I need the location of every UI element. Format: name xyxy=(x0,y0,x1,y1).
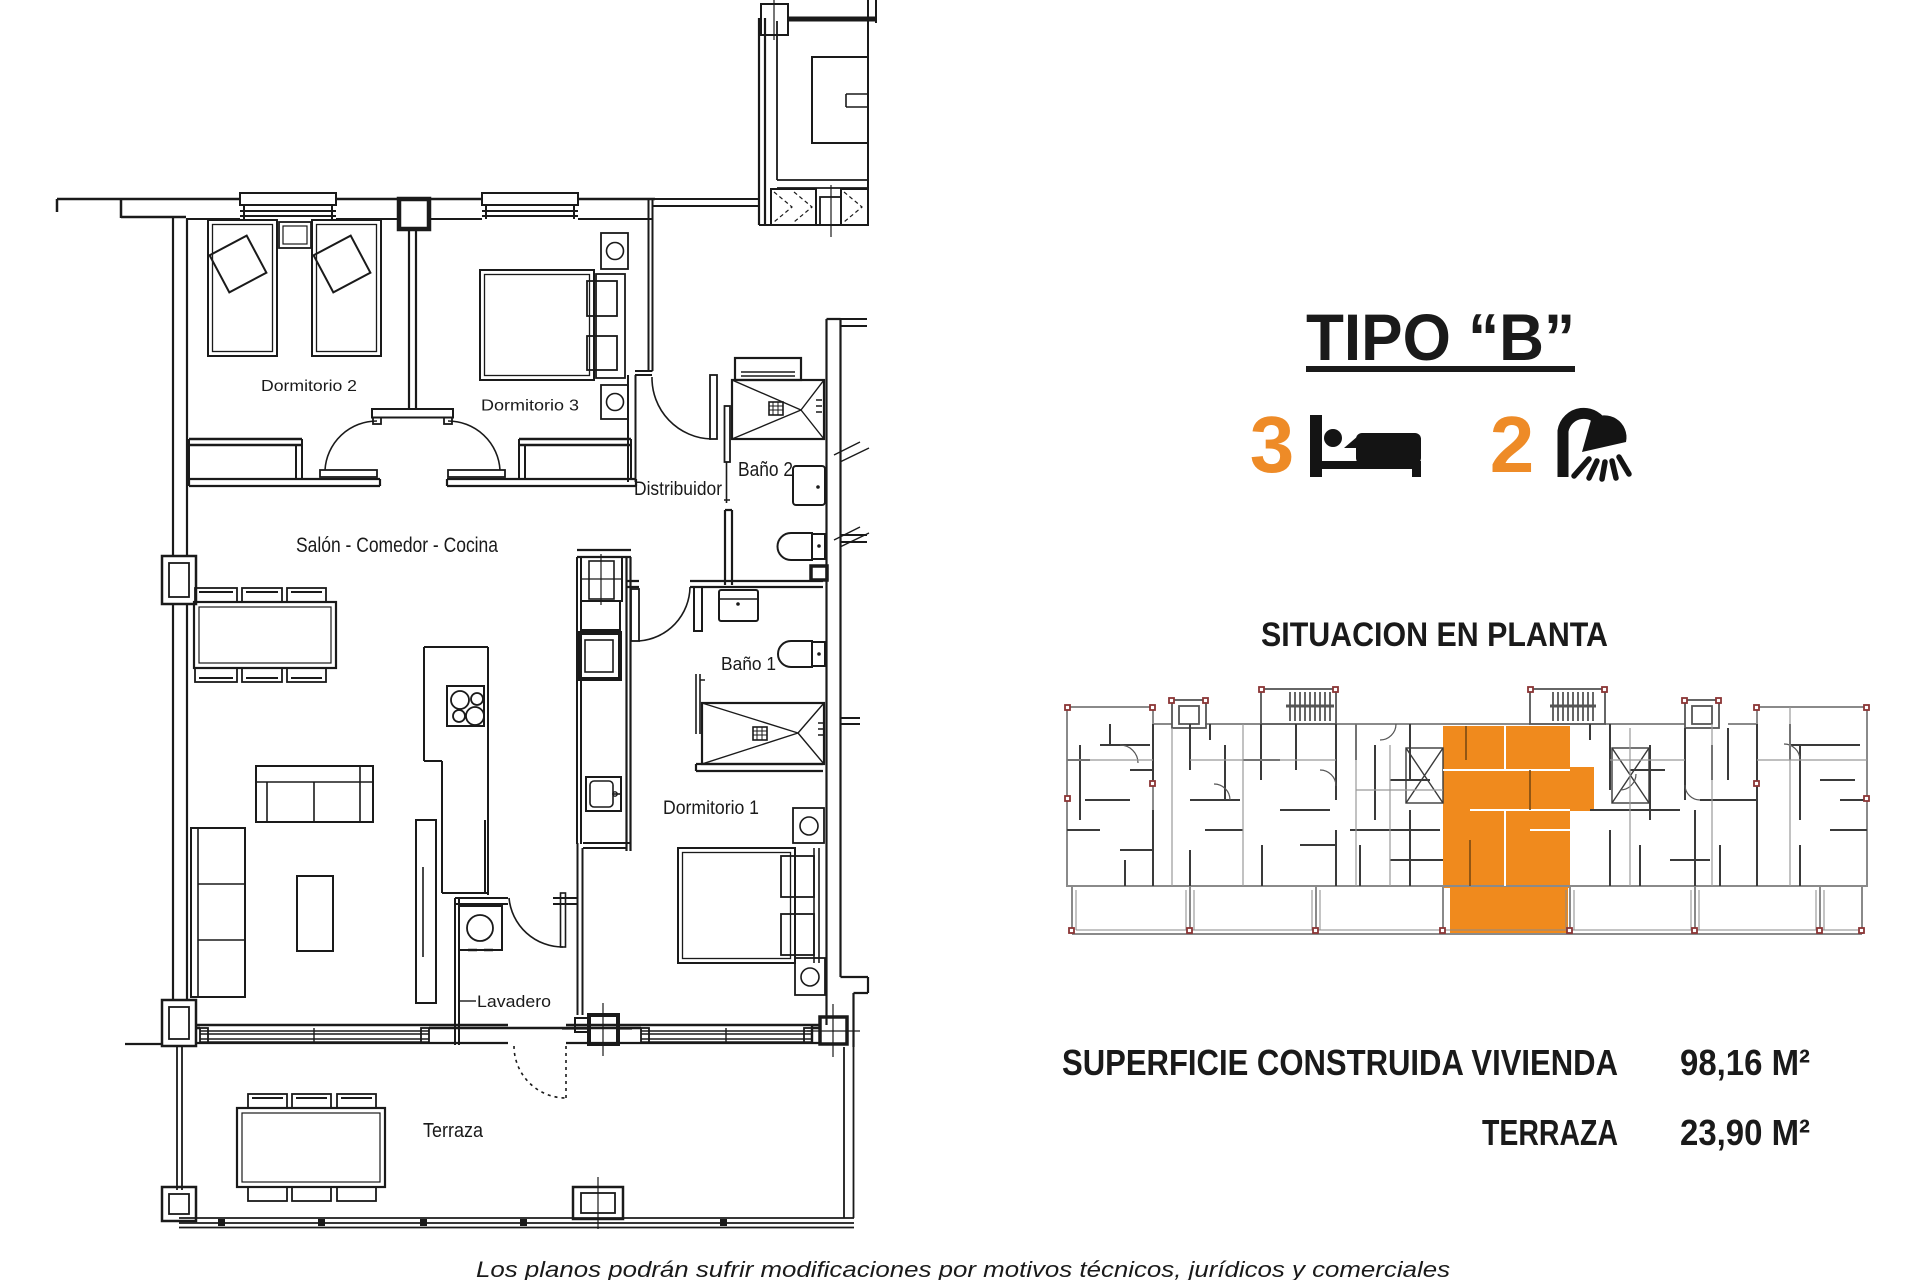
svg-text:Dormitorio 2: Dormitorio 2 xyxy=(261,378,357,395)
svg-text:TERRAZA: TERRAZA xyxy=(1482,1112,1618,1153)
svg-text:Distribuidor: Distribuidor xyxy=(634,478,722,500)
svg-text:Baño 2: Baño 2 xyxy=(738,458,793,481)
svg-text:Terraza: Terraza xyxy=(423,1120,484,1142)
svg-text:3: 3 xyxy=(1250,400,1295,489)
svg-text:98,16 M²: 98,16 M² xyxy=(1680,1042,1810,1083)
svg-text:Baño 1: Baño 1 xyxy=(721,653,776,674)
svg-text:Lavadero: Lavadero xyxy=(477,993,551,1011)
svg-text:Dormitorio 1: Dormitorio 1 xyxy=(663,798,759,819)
svg-text:SITUACION EN PLANTA: SITUACION EN PLANTA xyxy=(1261,616,1608,654)
svg-text:23,90 M²: 23,90 M² xyxy=(1680,1112,1810,1153)
svg-text:Dormitorio 3: Dormitorio 3 xyxy=(481,398,579,415)
svg-text:Salón - Comedor - Cocina: Salón - Comedor - Cocina xyxy=(296,534,498,557)
svg-text:SUPERFICIE CONSTRUIDA VIVIENDA: SUPERFICIE CONSTRUIDA VIVIENDA xyxy=(1062,1042,1618,1083)
svg-text:2: 2 xyxy=(1490,400,1535,489)
svg-text:Los planos podrán sufrir modif: Los planos podrán sufrir modificaciones … xyxy=(476,1257,1450,1280)
svg-text:TIPO “B”: TIPO “B” xyxy=(1306,300,1575,374)
